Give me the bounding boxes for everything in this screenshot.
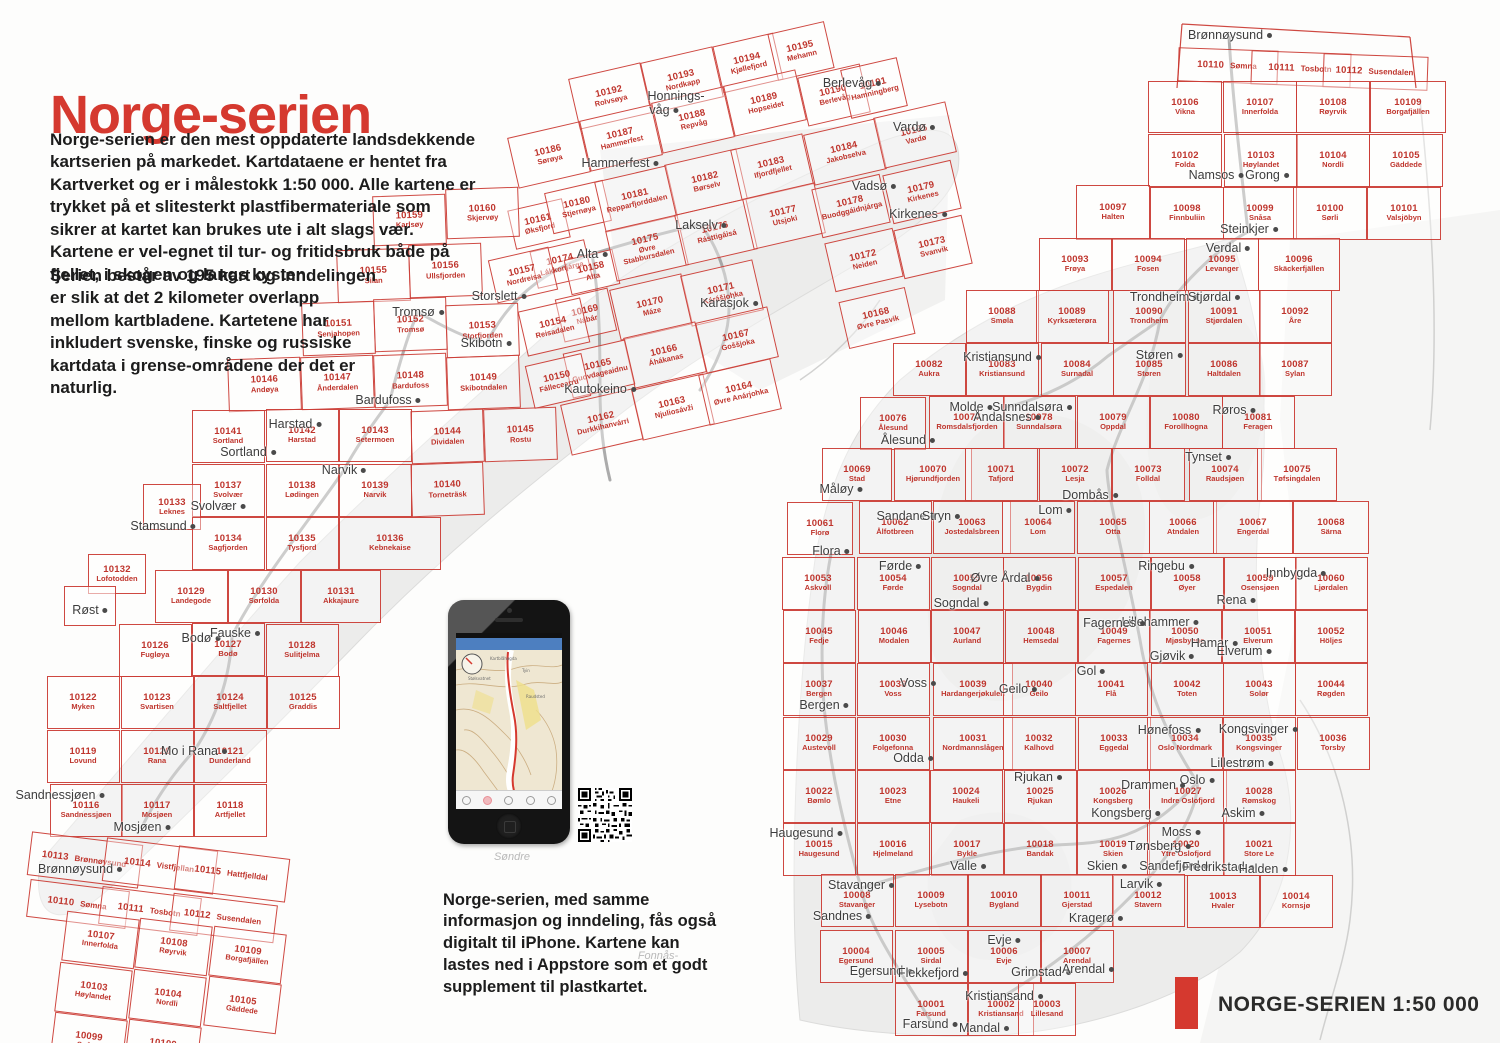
sheet-name: Romsdalsfjorden	[934, 423, 999, 431]
sheet-name: Lesja	[1063, 475, 1086, 483]
sheet-number: 10111	[1268, 63, 1295, 74]
map-sheet-cell: 10090Trondheim	[1113, 290, 1186, 343]
map-sheet-cell: 10092Åre	[1259, 290, 1332, 343]
map-sheet-cell: 10089Kyrksæterøra	[1036, 290, 1109, 343]
sheet-name: Lødingen	[283, 491, 321, 499]
map-sheet-cell: 10185Vardø	[873, 101, 957, 168]
sheet-name: Bandak	[1024, 850, 1055, 858]
map-sheet-cell: 10054Førde	[857, 557, 930, 610]
map-sheet-cell: 10124Saltfjellet	[194, 676, 267, 729]
map-sheet-cell: 10108Røyrvik	[1296, 81, 1370, 133]
topo-map-graphic: KartblåhøgdaTyin StølsvatnetRaudsted	[456, 650, 562, 791]
phone-camera-dot	[507, 608, 512, 613]
sheet-name: Skibotndalen	[458, 382, 509, 392]
intro-paragraph-2: Serien består av 195 kart og inndelingen…	[50, 265, 380, 400]
map-sheet-cell: 10108Røyrvik	[134, 918, 213, 977]
sheet-name: Toten	[1175, 690, 1199, 698]
map-sheet-cell: 10141Sortland	[192, 410, 265, 463]
map-sheet-cell: 10098Finnbuliin	[1150, 187, 1224, 240]
sheet-name: Oslo Nordmark	[1156, 744, 1214, 752]
sheet-name: Kyrksæterøra	[1046, 317, 1099, 325]
sheet-name: Borgafjällen	[1384, 108, 1431, 116]
map-sheet-cell: 10105Gäddede	[203, 976, 282, 1035]
sheet-name: Graddis	[287, 703, 319, 711]
sheet-name: Osensjøen	[1239, 584, 1281, 592]
sheet-name: Stavern	[1132, 901, 1164, 909]
sheet-name: Lovund	[67, 757, 98, 765]
map-sheet-cell: 10087Sylan	[1259, 343, 1332, 396]
sheet-name: Ålfotbreen	[874, 528, 916, 536]
map-sheet-cell: 10079Oppdal	[1077, 396, 1150, 449]
map-sheet-cell: 10005Sirdal	[895, 930, 968, 983]
sheet-name: Hattfjelldal	[225, 869, 271, 883]
map-sheet-cell: 10003Lillesand	[1018, 983, 1076, 1036]
map-sheet-cell: 10143Setermoen	[339, 409, 412, 462]
map-sheet-cell: 10064Lom	[1002, 501, 1075, 554]
phone-screen-map: KartblåhøgdaTyin StølsvatnetRaudsted	[456, 633, 562, 809]
map-sheet-cell: 10044Røgden	[1295, 663, 1368, 716]
sheet-name: Espedalen	[1093, 584, 1135, 592]
map-sheet-cell: 10007Arendal	[1041, 930, 1114, 983]
map-sheet-cell: 10014Kornsjø	[1260, 875, 1333, 928]
sheet-name: Førde	[881, 584, 906, 592]
map-sheet-cell: 10038Voss	[857, 663, 930, 716]
map-sheet-cell: 10046Modalen	[858, 610, 931, 663]
map-sheet-cell: 10139Narvik	[339, 464, 412, 517]
sheet-name: Raudsjøen	[1204, 475, 1246, 483]
map-sheet-cell: 10026Kongsberg	[1077, 770, 1150, 823]
map-sheet-cell: 10032Kalhovd	[1003, 717, 1076, 770]
map-sheet-cell: 10018Bandak	[1004, 823, 1077, 876]
map-sheet-cell: 10010Bygland	[968, 874, 1041, 927]
map-sheet-cell: 10006Evje	[968, 930, 1041, 983]
sheet-name: Aurland	[951, 637, 983, 645]
sheet-name: Folldal	[1134, 475, 1162, 483]
sheet-number: 10112	[183, 908, 211, 922]
sheet-name: Valsjöbyn	[1384, 214, 1423, 222]
map-sheet-cell: 10136Kebnekaise	[339, 517, 441, 570]
map-sheet-cell: 10035Kongsvinger	[1223, 717, 1296, 770]
footer-series-label: NORGE-SERIEN 1:50 000	[1218, 993, 1479, 1017]
sheet-name: Finnbuliin	[1167, 214, 1207, 222]
sheet-name: Svartisen	[138, 703, 176, 711]
sheet-name: Landegode	[169, 597, 213, 605]
sheet-name: Stad	[847, 475, 867, 483]
map-sheet-cell: 10013Hvaler	[1187, 875, 1260, 928]
map-sheet-cell: 10037Bergen	[783, 663, 856, 716]
sheet-name: Artfjellet	[213, 811, 247, 819]
map-sheet-cell: 10031Nordmannslågen	[933, 717, 1013, 770]
sheet-name: Saltfjellet	[211, 703, 248, 711]
map-sheet-cell: 10021Store Le	[1223, 823, 1296, 876]
sheet-name: Engerdal	[1235, 528, 1271, 536]
sheet-name: Kristiansund	[977, 370, 1027, 378]
sheet-name: Myken	[69, 703, 96, 711]
sheet-name: Rjukan	[1025, 797, 1054, 805]
map-sheet-cell: 10172Neiden	[824, 228, 903, 292]
map-sheet-cell: 10017Bykle	[931, 823, 1004, 876]
map-sheet-cell: 10061Florø	[787, 502, 853, 555]
sheet-name: Kalhovd	[1022, 744, 1056, 752]
sheet-name: Bykle	[955, 850, 979, 858]
sheet-number: 10111	[117, 902, 144, 916]
sheet-name: Torsby	[1319, 744, 1347, 752]
sheet-name: Gjerstad	[1060, 901, 1094, 909]
sheet-number: 10100	[148, 1037, 176, 1043]
sheet-name: Särna	[1319, 528, 1344, 536]
sheet-name: Borgafjällen	[222, 953, 270, 967]
map-sheet-cell: 10102Folda	[1148, 134, 1222, 187]
map-sheet-cell: 10157Nordreisa	[488, 247, 558, 304]
sheet-name: Høylandet	[1241, 161, 1281, 169]
map-sheet-cell: 10138Lødingen	[266, 464, 339, 517]
map-sheet-cell: 10153Storfjorden	[445, 302, 520, 358]
map-sheet-cell: 10152Tromsø	[373, 296, 448, 352]
map-sheet-cell: 10023Etne	[857, 770, 930, 823]
map-sheet-cell: 10011Gjerstad	[1041, 874, 1114, 927]
sheet-name: Susendalen	[214, 913, 264, 927]
appstore-qr-code	[578, 788, 632, 842]
sheet-name: Hemsedal	[1021, 637, 1060, 645]
sheet-name: Mjøsbyene	[1164, 637, 1207, 645]
map-sheet-cell: 10082Aukra	[893, 343, 966, 396]
map-sheet-cell: 10056Bygdin	[1003, 557, 1076, 610]
map-sheet-cell: 10186Sørøya	[507, 121, 591, 188]
map-sheet-cell: 10078Sunndalsøra	[1003, 396, 1076, 449]
map-sheet-cell: 10173Svanvik	[893, 215, 972, 279]
map-sheet-cell: 10020Ytre Oslofjord	[1147, 823, 1225, 876]
sheet-name: Florø	[809, 529, 832, 537]
map-sheet-cell: 10104Nordli	[1296, 134, 1370, 187]
sheet-name: Bygland	[987, 901, 1021, 909]
map-sheet-cell: 10050Mjøsbyene	[1149, 610, 1222, 663]
sheet-number: 10110	[47, 895, 75, 909]
map-sheet-cell: 10042Toten	[1151, 663, 1224, 716]
map-sheet-cell: 10009Lysebotn	[895, 874, 968, 927]
map-sheet-cell: 10088Smøla	[966, 290, 1039, 343]
map-sheet-cell: 10179Kirkenes	[882, 160, 961, 224]
phone-home-button	[496, 813, 522, 839]
iphone-paragraph: Norge-serien, med samme informasjon og i…	[443, 890, 723, 999]
sheet-name: Skien	[1101, 850, 1125, 858]
sheet-name: Solør	[1247, 690, 1270, 698]
sheet-name: Sørli	[1320, 214, 1341, 222]
sheet-name: Feragen	[1241, 423, 1274, 431]
map-sheet-cell: 10041Flå	[1075, 663, 1148, 716]
sheet-name: Bardufoss	[390, 381, 431, 390]
map-sheet-cell: 10057Espedalen	[1078, 557, 1151, 610]
map-sheet-cell: 10039Hardangerjøkulen	[933, 663, 1013, 716]
map-sheet-cell: 10093Frøya	[1039, 238, 1112, 291]
map-sheet-cell: 10066Atndalen	[1149, 501, 1217, 554]
sheet-name: Trondheim	[1128, 317, 1170, 325]
sheet-name: Atndalen	[1165, 528, 1201, 536]
sheet-name: Stjørdalen	[1204, 317, 1245, 325]
map-sheet-cell: 10134Sagfjorden	[192, 517, 265, 570]
map-sheet-cell: 10100Sørli	[1293, 187, 1367, 240]
map-sheet-cell: 10104Nordli	[128, 969, 207, 1028]
map-sheet-cell: 10125Graddis	[267, 676, 340, 729]
sheet-name: Nordmannslågen	[940, 744, 1005, 752]
map-sheet-cell: 10072Lesja	[1039, 448, 1112, 501]
brochure-page: 10192Rolvsøya10193Nordkapp10194Kjøllefjo…	[0, 0, 1500, 1043]
map-sheet-cell: 10105Gäddede	[1369, 134, 1443, 187]
sheet-name: Svolvær	[211, 491, 245, 499]
rost-sheet-box	[64, 586, 116, 626]
sheet-name: Innerfolda	[1240, 108, 1280, 116]
map-sheet-cell: 10058Øyer	[1151, 557, 1224, 610]
sheet-name: Åre	[1287, 317, 1304, 325]
map-sheet-cell: 10131Akkajaure	[301, 570, 381, 623]
map-sheet-cell: 10126Fugløya	[119, 624, 192, 677]
sheet-name: Fedje	[807, 637, 831, 645]
map-sheet-cell: 10127Bodø	[192, 623, 265, 676]
map-sheet-cell: 10116Sandnessjøen	[50, 784, 123, 837]
sheet-name: Gäddede	[1388, 161, 1424, 169]
app-toolbar	[456, 790, 562, 809]
position-icon	[483, 796, 492, 805]
map-sheet-cell: 10076Ålesund	[860, 397, 926, 450]
map-sheet-cell: 10019Skien	[1077, 823, 1150, 876]
map-sheet-cell: 10119Lovund	[47, 730, 120, 783]
map-sheet-cell: 10107Innerfolda	[61, 911, 140, 970]
sheet-name: Folda	[1173, 161, 1197, 169]
sheet-name: Bergen	[804, 690, 834, 698]
sheet-name: Sandnessjøen	[59, 811, 114, 819]
sheet-name: Oppdal	[1098, 423, 1128, 431]
map-sheet-cell: 10028Rømskog	[1223, 770, 1296, 823]
map-sheet-cell: 10036Torsby	[1297, 717, 1370, 770]
map-sheet-cell: 10122Myken	[47, 676, 120, 729]
sheet-name: Dividalen	[428, 437, 466, 446]
map-sheet-cell: 10096Skäckerfjällen	[1258, 238, 1340, 291]
layers-icon	[462, 796, 471, 805]
sheet-name: Lillesand	[1029, 1010, 1066, 1018]
sheet-name: Leknes	[157, 508, 187, 516]
map-sheet-cell: 10012Stavern	[1112, 874, 1185, 927]
map-sheet-cell: 10073Folldal	[1112, 448, 1185, 501]
map-sheet-cell: 10047Aurland	[931, 610, 1004, 663]
sheet-name: Egersund	[837, 957, 876, 965]
svg-text:Kartblåhøgda: Kartblåhøgda	[490, 656, 517, 661]
sheet-name: Store Le	[1242, 850, 1276, 858]
sheet-name: Voss	[882, 690, 903, 698]
sheet-name: Rømskog	[1240, 797, 1278, 805]
sheet-name: Jostedalsbreen	[942, 528, 1001, 536]
sheet-name: Rostu	[507, 435, 533, 444]
sheet-name: Lom	[1028, 528, 1048, 536]
sheet-name: Tysfjord	[285, 544, 318, 552]
sheet-name: Alta	[583, 271, 602, 283]
sheet-name: Eggedal	[1097, 744, 1130, 752]
map-sheet-cell: 10144Dividalen	[410, 408, 485, 464]
sheet-name: Kornsjø	[1280, 902, 1312, 910]
map-sheet-cell: 10086Haltdalen	[1188, 343, 1261, 396]
map-sheet-cell: 10107Innerfolda	[1223, 81, 1297, 133]
map-sheet-cell: 10103Høylandet	[54, 962, 133, 1021]
map-sheet-cell: 10029Austevoll	[783, 717, 856, 770]
sheet-name: Hjelmeland	[871, 850, 915, 858]
map-sheet-cell: 10142Harstad	[266, 409, 339, 462]
map-sheet-cell: 10083Kristiansund	[966, 343, 1039, 396]
sheet-name: Tøfsingdalen	[1272, 475, 1323, 483]
sheet-name: Haltdalen	[1205, 370, 1243, 378]
sheet-name: Askvoll	[803, 584, 834, 592]
map-sheet-cell: 10069Stad	[822, 448, 892, 501]
sheet-name: Storfjorden	[460, 331, 505, 340]
sheet-name: Støren	[1135, 370, 1163, 378]
sheet-name: Arendal	[1061, 957, 1093, 965]
sheet-name: Nordli	[1320, 161, 1346, 169]
map-sheet-cell: 10043Solør	[1223, 663, 1296, 716]
sheet-name: Kebnekaise	[367, 544, 413, 552]
map-sheet-cell: 10168Øvre Pasvik	[838, 287, 915, 349]
map-sheet-cell: 10080Forollhogna	[1150, 396, 1223, 449]
footer-red-block	[1175, 977, 1198, 1029]
sheet-name: Bygdin	[1024, 584, 1053, 592]
map-sheet-cell: 10128Sulitjelma	[266, 624, 339, 677]
map-sheet-cell: 10015Haugesund	[783, 823, 856, 876]
map-sheet-cell: 10004Egersund	[820, 930, 893, 983]
svg-text:Raudsted: Raudsted	[526, 694, 545, 699]
intro-paragraph-1: Norge-serien er den mest oppdaterte land…	[50, 129, 480, 286]
sheet-name: Røyrvik	[1317, 108, 1349, 116]
sheet-name: Kongsberg	[1091, 797, 1135, 805]
sheet-name: Etne	[883, 797, 903, 805]
map-sheet-cell: 10001Farsund	[895, 983, 968, 1036]
sheet-name: Hjørundfjorden	[904, 475, 962, 483]
map-sheet-cell: 10008Stavanger	[821, 874, 894, 927]
map-sheet-cell: 10059Osensjøen	[1224, 557, 1297, 610]
map-sheet-cell: 10070Hjørundfjorden	[894, 448, 972, 501]
sheet-name: Geilo	[1028, 690, 1051, 698]
map-sheet-cell: 10123Svartisen	[121, 676, 194, 729]
map-sheet-cell: 10022Bømlo	[783, 770, 856, 823]
sheet-name: Halten	[1100, 213, 1127, 221]
map-sheet-cell: 10077Romsdalsfjorden	[929, 396, 1005, 449]
map-sheet-cell: 10101Valsjöbyn	[1367, 187, 1441, 240]
list-icon	[547, 796, 556, 805]
sheet-name: Otta	[1104, 528, 1123, 536]
sheet-number: 10114	[123, 856, 151, 870]
map-sheet-cell: 10060Ljørdalen	[1295, 557, 1368, 610]
map-sheet-cell: 10148Bardufoss	[373, 352, 448, 408]
map-sheet-cell: 10025Rjukan	[1004, 770, 1077, 823]
map-sheet-cell: 10063Jostedalsbreen	[933, 501, 1011, 554]
map-sheet-cell: 10121Dunderland	[194, 730, 267, 783]
map-sheet-cell: 10130Sørfolda	[228, 570, 301, 623]
sheet-name: Ålesund	[876, 424, 910, 432]
sheet-name: Sørfolda	[247, 597, 281, 605]
sheet-name: Farsund	[914, 1010, 948, 1018]
sheet-name: Harstad	[286, 436, 318, 444]
sheet-name: Austevoll	[800, 744, 838, 752]
sheet-name: Sulitjelma	[282, 651, 321, 659]
sheet-name: Sirdal	[919, 957, 944, 965]
map-sheet-cell: 10085Støren	[1113, 343, 1186, 396]
map-sheet-cell: 10065Otta	[1077, 501, 1150, 554]
map-sheet-cell: 10149Skibotndalen	[446, 354, 521, 410]
iphone-illustration: KartblåhøgdaTyin StølsvatnetRaudsted	[448, 600, 570, 844]
sheet-name: Akkajaure	[321, 597, 361, 605]
map-sheet-cell: 10030Folgefonna	[857, 717, 930, 770]
map-sheet-cell: 10048Hemsedal	[1005, 610, 1078, 663]
sheet-name: Flå	[1104, 690, 1119, 698]
map-sheet-cell: 10068Särna	[1293, 501, 1369, 554]
search-icon	[526, 796, 535, 805]
sheet-name: Skäckerfjällen	[1272, 265, 1326, 273]
sheet-name: Vikna	[1173, 108, 1197, 116]
sheet-name: Folgefonna	[871, 744, 915, 752]
sheet-name: Narvik	[362, 491, 389, 499]
sheet-number: 10112	[1335, 65, 1362, 76]
map-sheet-cell: 10027Indre Oslofjord	[1149, 770, 1227, 823]
sheet-name: Frøya	[1063, 265, 1087, 273]
sheet-name: Haugesund	[797, 850, 842, 858]
map-sheet-cell: 10109Borgafjällen	[1370, 81, 1446, 133]
map-sheet-cell: 10016Hjelmeland	[857, 823, 930, 876]
sheet-name: Fosen	[1135, 265, 1161, 273]
sheet-name: Stavanger	[837, 901, 877, 909]
sheet-name: Forollhogna	[1162, 423, 1209, 431]
sheet-name: Kongsvinger	[1234, 744, 1284, 752]
map-sheet-cell: 10045Fedje	[783, 610, 856, 663]
map-sheet-cell: 10091Stjørdalen	[1188, 290, 1261, 343]
sheet-name: Surnadal	[1059, 370, 1095, 378]
map-sheet-cell: 10135Tysfjord	[266, 517, 339, 570]
map-sheet-cell: 10094Fosen	[1112, 238, 1185, 291]
phone-speaker	[495, 618, 523, 622]
map-sheet-cell: 10118Artfjellet	[194, 784, 267, 837]
map-sheet-cell: 10074Raudsjøen	[1189, 448, 1262, 501]
map-sheet-cell: 10053Askvoll	[782, 557, 855, 610]
map-sheet-cell: 10154Reisadalen	[518, 297, 591, 356]
sheet-name: Tromsø	[395, 325, 426, 334]
sheet-name: Smøla	[989, 317, 1016, 325]
map-sheet-cell: 10052Höljes	[1295, 610, 1368, 663]
sheet-number: 10115	[194, 864, 222, 878]
app-navbar	[456, 638, 562, 650]
map-sheet-cell: 10140Torneträsk	[410, 461, 485, 517]
svg-text:Stølsvatnet: Stølsvatnet	[468, 676, 491, 681]
map-sheet-cell: 10062Ålfotbreen	[859, 501, 932, 554]
map-sheet-cell: 10040Geilo	[1003, 663, 1076, 716]
map-sheet-cell: 10067Engerdal	[1213, 501, 1293, 554]
map-sheet-cell: 10117Mosjøen	[121, 784, 194, 837]
sheet-name: Gäddede	[223, 1004, 260, 1016]
sheet-name: Lysebotn	[912, 901, 949, 909]
sheet-name: Bømlo	[805, 797, 832, 805]
sheet-name: Øyer	[1176, 584, 1197, 592]
map-sheet-cell: 10075Tøfsingdalen	[1257, 448, 1337, 501]
sheet-name: Hvaler	[1210, 902, 1237, 910]
map-sheet-cell: 10145Rostu	[483, 406, 558, 462]
sheet-name: Dunderland	[207, 757, 253, 765]
sheet-name: Elverum	[1241, 637, 1275, 645]
map-sheet-cell: 10055Sogndal	[931, 557, 1004, 610]
sheet-name: Mosjøen	[140, 811, 174, 819]
sheet-name: Ljørdalen	[1312, 584, 1350, 592]
map-sheet-cell: 10109Borgafjällen	[208, 926, 287, 985]
sheet-name: Susendalen	[1366, 67, 1415, 77]
sheet-name: Fagernes	[1095, 637, 1132, 645]
sheet-name: Indre Oslofjord	[1159, 797, 1217, 805]
sheet-name: Höljes	[1318, 637, 1345, 645]
sheet-name: Ytre Oslofjord	[1159, 850, 1213, 858]
map-sheet-cell: 10097Halten	[1076, 185, 1150, 240]
map-sheet-cell: 10033Eggedal	[1078, 717, 1151, 770]
sheet-name: Haukeli	[951, 797, 982, 805]
